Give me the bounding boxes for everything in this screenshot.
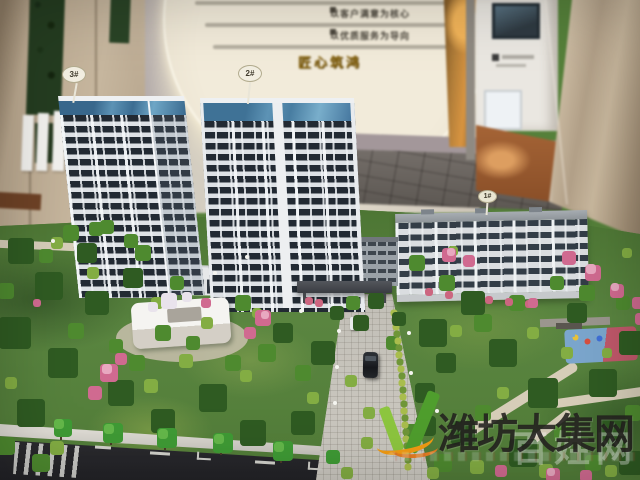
building-label-1: 1# — [478, 190, 497, 203]
roof-structure — [421, 209, 434, 214]
street-lamps — [0, 0, 2, 2]
gate-post — [303, 293, 306, 303]
pavilion-skylight — [167, 307, 202, 323]
brand-seal-text: 匠心筑鸿 — [245, 52, 415, 71]
parking-bay-mark — [308, 462, 322, 471]
watermark-fine-print — [388, 452, 640, 461]
wood-shelf — [0, 192, 41, 210]
entrance-gate-canopy — [297, 281, 392, 293]
model-car-white — [350, 317, 358, 330]
building-1-facade — [395, 219, 588, 295]
building-1-model — [395, 210, 589, 302]
parking-bay-mark — [197, 452, 211, 461]
play-equipment — [572, 334, 575, 337]
blurred-text-line — [205, 23, 457, 27]
slogan-heading-text: 以客户满意为核心 — [330, 7, 410, 20]
sales-center-model-photo: 以客户满意为核心 以优质服务为导向 匠心筑鸿 — [0, 0, 640, 480]
pergola-bench — [556, 323, 582, 329]
car-windshield — [365, 356, 376, 361]
blurred-text-line — [195, 1, 465, 5]
watermark-site-name: 潍坊大集网 — [438, 400, 633, 460]
roof-structure — [529, 207, 542, 212]
slogan-heading-text: 以优质服务为导向 — [330, 29, 410, 42]
playground-pad — [564, 326, 638, 364]
text-plaque — [502, 55, 534, 59]
white-binder — [21, 115, 34, 171]
gate-post — [383, 293, 386, 303]
display-frame — [484, 90, 522, 130]
tower-3-model — [58, 96, 205, 298]
white-binder — [36, 113, 49, 171]
green-plant-wall — [109, 0, 131, 43]
building-label-3: 3# — [62, 66, 86, 83]
plaque-icon — [492, 54, 499, 61]
tower-2-model — [200, 98, 365, 312]
blurred-text-line — [213, 45, 449, 49]
marble-pillar — [547, 0, 640, 241]
text-plaque — [496, 64, 526, 67]
building-label-2: 2# — [238, 65, 262, 82]
tower-glass-crown — [59, 101, 186, 115]
zebra-crossing — [13, 442, 81, 478]
model-car — [363, 352, 378, 378]
display-frame — [492, 3, 540, 39]
garden-pavilion — [131, 297, 232, 350]
doorway-edge — [466, 0, 475, 160]
